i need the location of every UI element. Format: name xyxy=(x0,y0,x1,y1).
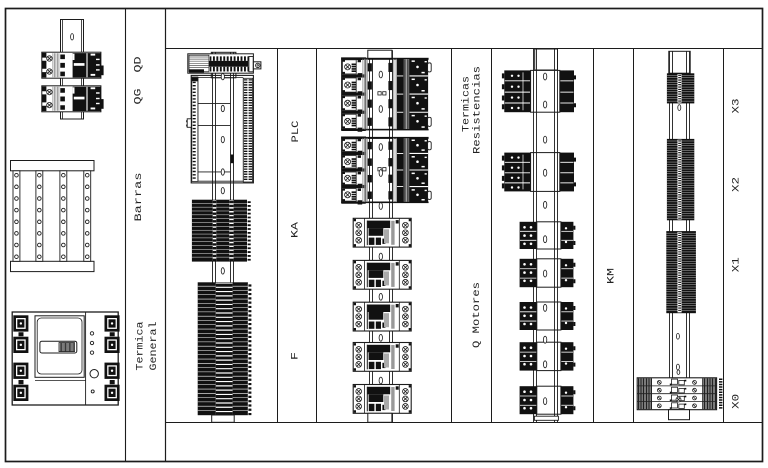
svg-text:Barras: Barras xyxy=(134,173,145,222)
svg-text:KA: KA xyxy=(291,222,302,238)
svg-text:QG QD: QG QD xyxy=(134,57,145,105)
svg-text:Termica: Termica xyxy=(135,322,147,371)
svg-text:Termicas: Termicas xyxy=(461,76,473,132)
svg-text:X3: X3 xyxy=(732,99,743,114)
svg-text:F: F xyxy=(291,352,302,360)
svg-text:Resistencias: Resistencias xyxy=(472,66,484,154)
svg-text:General: General xyxy=(148,322,160,371)
svg-text:Q Motores: Q Motores xyxy=(472,282,483,348)
svg-text:X0: X0 xyxy=(732,394,743,409)
svg-text:X2: X2 xyxy=(732,177,743,192)
svg-text:X1: X1 xyxy=(732,257,743,272)
svg-text:KM: KM xyxy=(607,268,618,284)
svg-text:PLC: PLC xyxy=(291,121,302,143)
